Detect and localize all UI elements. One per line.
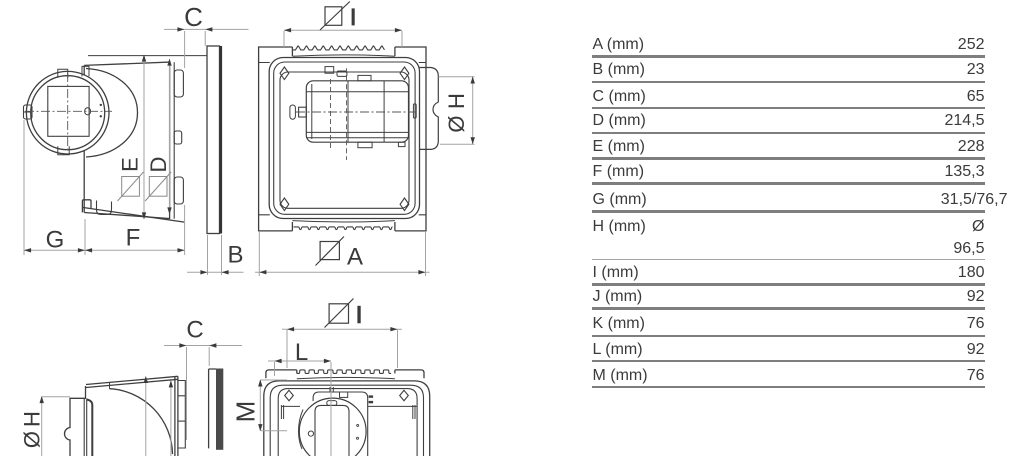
svg-text:H: H (444, 93, 469, 109)
svg-text:C: C (184, 2, 203, 32)
svg-text:M: M (231, 401, 261, 423)
svg-text:F: F (126, 225, 141, 252)
svg-text:L: L (295, 339, 308, 366)
svg-text:Ø: Ø (20, 431, 45, 448)
svg-text:C: C (186, 316, 203, 343)
svg-text:B: B (227, 242, 243, 269)
svg-text:D: D (146, 157, 171, 173)
svg-text:A: A (347, 243, 363, 270)
svg-text:E: E (118, 157, 143, 172)
svg-text:G: G (46, 227, 65, 254)
svg-text:H: H (20, 411, 45, 427)
svg-text:Ø: Ø (444, 115, 469, 132)
